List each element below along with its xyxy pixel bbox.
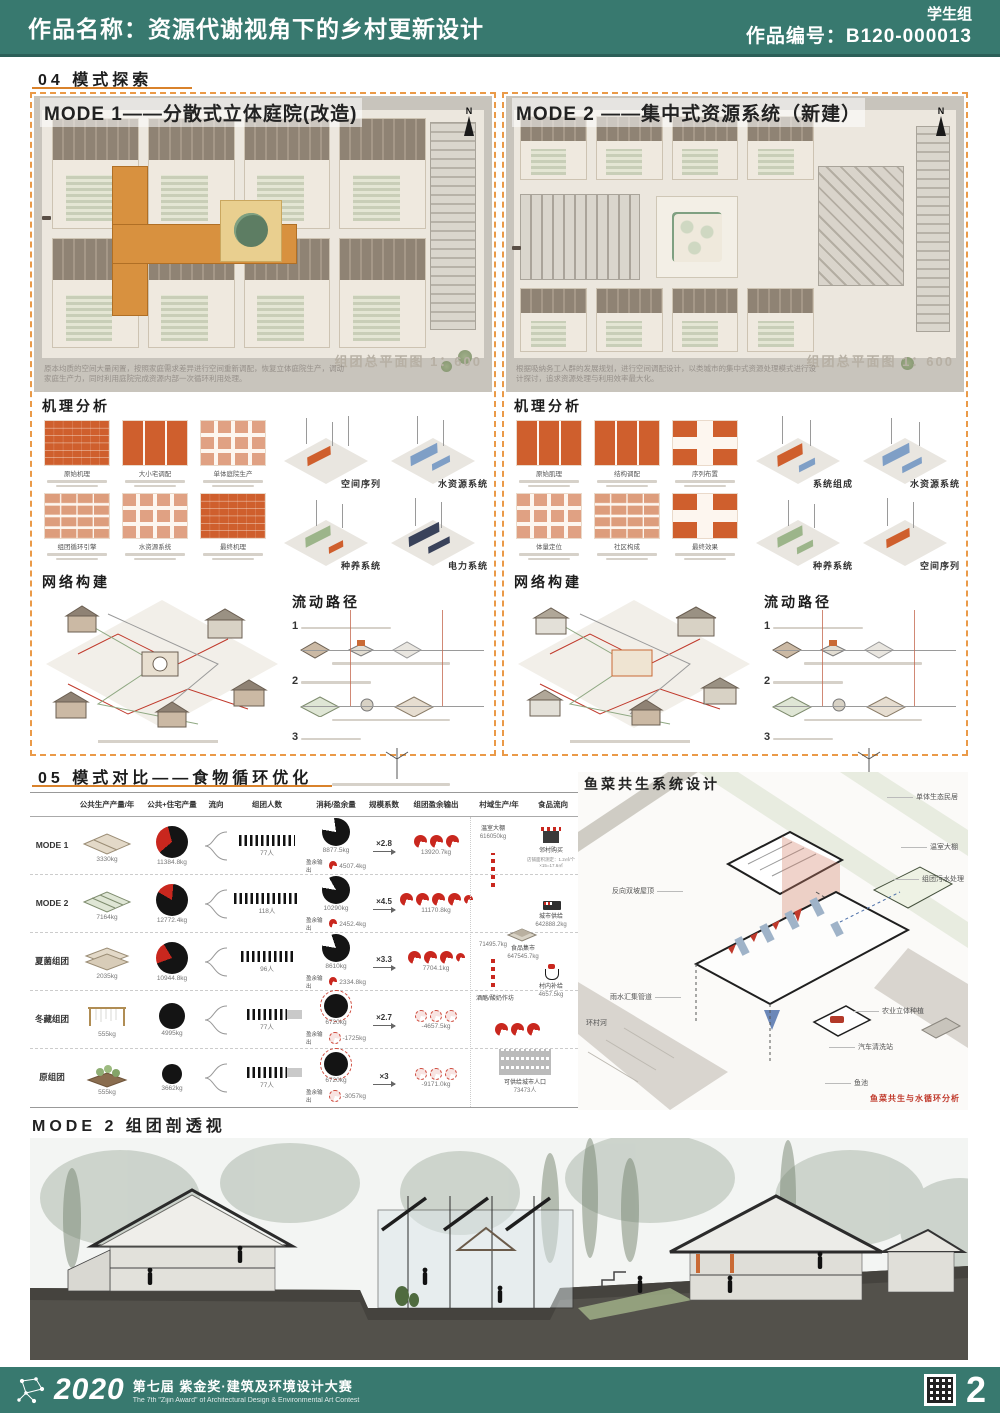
col-header: 组团盈余输出 — [402, 799, 470, 810]
north-arrow-icon: N — [456, 106, 482, 136]
people-icons — [247, 1067, 287, 1078]
mode1-panel: MODE 1——分散式立体庭院(改造) N 组团总平面图 1：600 原本均质的… — [30, 92, 496, 756]
row-label: MODE 1 — [36, 840, 69, 851]
pond — [234, 213, 268, 247]
surplus-value: -3057kg — [343, 1093, 367, 1100]
mech-thumb — [44, 493, 110, 539]
flow-branch — [205, 1058, 227, 1098]
people-count: 77人 — [260, 1021, 274, 1031]
col-header: 公共生产产量/年 — [74, 799, 140, 810]
plate-icon — [862, 636, 896, 660]
output-fan — [415, 1010, 427, 1022]
arrow-icon — [373, 967, 395, 968]
work-code: 作品编号：B120-000013 — [746, 25, 972, 49]
footer-year: 2020 — [54, 1373, 125, 1407]
output-fan — [430, 1010, 442, 1022]
long-building — [520, 194, 640, 280]
output-fan — [495, 1023, 508, 1036]
flow-heading: 流动路径 — [764, 592, 962, 612]
produce-value: 3330kg — [96, 856, 117, 863]
output-fan — [414, 835, 427, 848]
mech-thumb — [44, 420, 110, 466]
surplus-label: 盈余输出 — [306, 858, 327, 874]
mech-thumb — [122, 493, 188, 539]
row-label: 冬藏组团 — [35, 1014, 69, 1025]
neighbor-node: 邻村购买 — [527, 847, 575, 855]
surplus-label: 盈余输出 — [306, 974, 327, 990]
mech-thumb — [672, 420, 738, 466]
output-value: 7704.1kg — [423, 965, 450, 972]
diagram-label: 雨水汇集管道 — [610, 992, 684, 1002]
surplus-fan — [329, 1032, 341, 1044]
diagram-label: 反向双坡屋顶 — [612, 886, 686, 896]
people-count: 77人 — [260, 847, 274, 857]
consume-pie — [322, 876, 350, 904]
total-value: 4995kg — [161, 1030, 182, 1037]
mech-thumb — [516, 493, 582, 539]
diagram-label: 环村河 — [586, 1018, 607, 1028]
plan-caption: 组团总平面图 1：600 — [806, 351, 954, 370]
output-fan — [527, 1023, 540, 1036]
heading-underline — [32, 785, 332, 787]
total-value: 3662kg — [161, 1085, 182, 1092]
surplus-fan — [329, 1090, 341, 1102]
mode2-title: MODE 2 ——集中式资源系统（新建） — [512, 98, 865, 127]
arrow-icon — [373, 851, 395, 852]
flow-dots — [491, 957, 495, 987]
flow-paths: 流动路径 1 2 3 — [764, 592, 962, 792]
flow-step-number: 1 — [764, 620, 770, 632]
output-fan — [432, 893, 445, 906]
output-fan — [448, 893, 461, 906]
col-header: 村域生产/年 — [470, 799, 528, 810]
col-header: 公共+住宅产量 — [140, 799, 204, 810]
cluster-thumb — [80, 887, 134, 913]
section-perspective-render — [30, 1138, 968, 1360]
flow-branch — [205, 1000, 227, 1040]
consume-value: 8877.5kg — [323, 847, 350, 854]
workshop-node: 酒酪/酸奶作坊 — [471, 995, 519, 1003]
population-node: 可供给城市人口73473人 — [485, 1079, 565, 1095]
page-number: 2 — [966, 1372, 986, 1408]
greenhouse-strip — [916, 126, 950, 332]
arrow-icon — [373, 1025, 395, 1026]
output-fan — [440, 951, 453, 964]
group-label: 学生组 — [746, 6, 972, 25]
truck-icon — [543, 901, 561, 910]
city-node: 城市供给642888.2kg — [527, 913, 575, 929]
produce-value: 2035kg — [96, 973, 117, 980]
axon-diagrams: 空间序列 水资源系统 种养系统 电力系统 — [276, 416, 490, 572]
surplus-label: 盈余输出 — [306, 1088, 327, 1104]
axon-label: 种养系统 — [341, 559, 381, 572]
network-heading: 网络构建 — [514, 572, 582, 592]
plan-description: 根据吸纳务工人群的发展规划，进行空间调配设计，以类城市的集中式资源处理模式进行设… — [516, 364, 816, 384]
house-icon — [770, 636, 804, 660]
people-icons — [241, 951, 293, 962]
plate-icon — [390, 636, 424, 660]
scale-coefficient: ×4.5 — [376, 897, 392, 906]
people-count: 118人 — [259, 905, 276, 915]
north-arrow-icon: N — [928, 106, 954, 136]
consume-value: 6720kg — [325, 1019, 346, 1026]
cluster-thumb — [80, 1060, 134, 1088]
axon-label: 系统组成 — [813, 477, 853, 490]
house-block — [339, 238, 426, 349]
comparison-table: 公共生产产量/年 公共+住宅产量 流向 组团人数 消耗/盈余量 规模系数 组团盈… — [30, 792, 578, 1108]
surplus-label: 盈余输出 — [306, 916, 327, 932]
scale-coefficient: ×2.8 — [376, 839, 392, 848]
output-value: -9171.0kg — [422, 1081, 451, 1088]
consume-value: 10290kg — [324, 905, 349, 912]
mech-thumb — [516, 420, 582, 466]
mech-label: 结构调配 — [592, 468, 662, 478]
consume-pie — [324, 1052, 348, 1076]
surplus-value: 2452.4kg — [339, 921, 366, 928]
mech-thumb — [672, 493, 738, 539]
house-block — [596, 288, 663, 352]
cluster-thumb — [80, 944, 134, 972]
surplus-value: 2334.8kg — [339, 979, 366, 986]
consume-pie — [324, 994, 348, 1018]
surplus-label: 盈余输出 — [306, 1030, 327, 1046]
output-fan — [400, 893, 413, 906]
production-pie — [159, 1003, 185, 1029]
axon-label: 电力系统 — [448, 559, 488, 572]
fish-caption: 鱼菜共生与水循环分析 — [870, 1093, 960, 1104]
greenhouse-icon — [298, 691, 342, 717]
mech-thumb — [594, 420, 660, 466]
mech-thumb — [200, 420, 266, 466]
mode1-site-plan: N 组团总平面图 1：600 原本均质的空间大量闲置，按照家庭需求差异进行空间重… — [34, 96, 492, 392]
car — [42, 216, 51, 220]
arrow-icon — [373, 1084, 395, 1085]
mech-thumb — [594, 493, 660, 539]
zijin-logo-icon — [14, 1373, 48, 1407]
output-fan — [424, 951, 437, 964]
mech-label: 原始肌理 — [514, 468, 584, 478]
scale-coefficient: ×3.3 — [376, 955, 392, 964]
mech-label: 序列布置 — [670, 468, 740, 478]
diagram-label: 农业立体种植 — [850, 1006, 924, 1016]
greenhouse-icon — [864, 691, 908, 717]
food-flow-zone: 温室大棚616050kg 71495.7kg 酒酪/酸奶作坊 食品集市64754… — [470, 817, 578, 1107]
network-diagram — [510, 594, 758, 752]
mech-label: 最终效果 — [670, 541, 740, 551]
arrow-icon — [373, 909, 395, 910]
greenhouse-icon — [770, 691, 814, 717]
cluster-thumb — [80, 829, 134, 855]
row-label: 夏菌组团 — [35, 956, 69, 967]
output-fan — [445, 1010, 457, 1022]
cart-icon — [545, 969, 559, 980]
total-value: 10944.8kg — [157, 975, 187, 982]
footer-bar: 2020 第七届 紫金奖·建筑及环境设计大赛 The 7th "Zijin Aw… — [0, 1367, 1000, 1413]
output-fan — [415, 1068, 427, 1080]
row-label: 原组团 — [39, 1072, 65, 1083]
surplus-fan — [329, 919, 337, 928]
output-value: 13920.7kg — [421, 849, 451, 856]
neighbor-note: 店铺面积测定：1.2㎡/个×15=17.6㎡ — [523, 857, 579, 869]
mech-thumb — [200, 493, 266, 539]
wind-turbine-icon — [374, 747, 420, 781]
consume-pie — [322, 818, 350, 846]
output-fan — [430, 835, 443, 848]
pump-icon — [356, 691, 378, 717]
output-fan — [430, 1068, 442, 1080]
flow-dots — [491, 853, 495, 887]
people-icons — [239, 835, 295, 846]
mech-label: 最终机理 — [198, 541, 268, 551]
perspective-heading: MODE 2 组团剖透视 — [32, 1112, 226, 1136]
output-fan — [416, 893, 429, 906]
flow-branch — [205, 884, 227, 924]
scale-coefficient: ×2.7 — [376, 1013, 392, 1022]
consume-value: 8610kg — [325, 963, 346, 970]
house-icon — [298, 636, 332, 660]
work-title: 作品名称：资源代谢视角下的乡村更新设计 — [28, 10, 484, 44]
row-label: MODE 2 — [36, 898, 69, 909]
market-node: 食品集市647545.7kg — [497, 945, 549, 961]
network-heading: 网络构建 — [42, 572, 110, 592]
plan-caption: 组团总平面图 1：600 — [334, 351, 482, 370]
total-value: 11384.8kg — [157, 859, 187, 866]
house-block — [672, 288, 739, 352]
mode2-site-plan: N 组团总平面图 1：600 根据吸纳务工人群的发展规划，进行空间调配设计，以类… — [506, 96, 964, 392]
mechanism-diagrams: 原始机理 大小宅调配 单体庭院生产 组团循环引擎 水资源系统 最终机理 — [42, 420, 268, 560]
axon-label: 空间序列 — [341, 477, 381, 490]
output-fan — [408, 951, 421, 964]
footer-title-cn: 第七届 紫金奖·建筑及环境设计大赛 — [133, 1376, 360, 1395]
network-diagram — [38, 594, 286, 752]
mech-thumb — [122, 420, 188, 466]
flow-paths: 流动路径 1 2 3 — [292, 592, 490, 792]
people-icons — [234, 893, 300, 904]
flow-step-number: 3 — [764, 731, 770, 743]
cluster-thumb — [80, 1002, 134, 1030]
output-fan — [511, 1023, 524, 1036]
consume-value: 6720kg — [325, 1077, 346, 1084]
col-header: 食品流向 — [528, 799, 578, 810]
plan-description: 原本均质的空间大量闲置，按照家庭需求差异进行空间重新调配，恢复立体庭院生产，调动… — [44, 364, 344, 384]
output-value: -4657.5kg — [422, 1023, 451, 1030]
consume-pie — [322, 934, 350, 962]
mode2-panel: MODE 2 ——集中式资源系统（新建） N 组团总平面图 1：600 根据吸纳… — [502, 92, 968, 756]
production-pie — [156, 884, 188, 916]
diagram-label: 单体生态民居 — [884, 792, 958, 802]
greenhouse-icon — [392, 691, 436, 717]
production-pie — [162, 1064, 182, 1084]
production-pie — [156, 942, 188, 974]
diagram-label: 汽车清洗站 — [826, 1042, 893, 1052]
mech-label: 社区构成 — [592, 541, 662, 551]
output-value: 11170.8kg — [421, 907, 450, 914]
diagram-label: 鱼池 — [822, 1078, 868, 1088]
mechanism-diagrams: 原始肌理 结构调配 序列布置 体量定位 社区构成 最终效果 — [514, 420, 740, 560]
fish-heading: 鱼菜共生系统设计 — [584, 774, 720, 794]
axon-label: 水资源系统 — [910, 477, 960, 490]
mech-label: 单体庭院生产 — [198, 468, 268, 478]
village-node: 村内补给4657.5kg — [527, 983, 575, 999]
flow-step-number: 1 — [292, 620, 298, 632]
people-count: 77人 — [260, 1079, 274, 1089]
mech-label: 组团循环引擎 — [42, 541, 112, 551]
shop-icon — [543, 831, 559, 843]
fish-veg-panel: 鱼菜共生系统设计 单体生态民居 温室大棚 组团污水处理 反向双坡屋顶 雨水汇集管… — [578, 772, 968, 1110]
people-count: 96人 — [260, 963, 274, 973]
footer-title-en: The 7th "Zijin Award" of Architectural D… — [133, 1397, 360, 1404]
header-bar: 作品名称：资源代谢视角下的乡村更新设计 学生组 作品编号：B120-000013 — [0, 0, 1000, 57]
surplus-fans — [495, 1023, 540, 1036]
axon-diagrams: 系统组成 水资源系统 种养系统 空间序列 — [748, 416, 962, 572]
mech-label: 水资源系统 — [120, 541, 190, 551]
surplus-value: -1725kg — [343, 1035, 367, 1042]
scale-coefficient: ×3 — [379, 1072, 388, 1081]
mech-label: 大小宅调配 — [120, 468, 190, 478]
col-header: 流向 — [204, 799, 228, 810]
population-icons — [499, 1049, 551, 1075]
flow-step-number: 2 — [764, 675, 770, 687]
col-header: 组团人数 — [228, 799, 306, 810]
flow-branch — [205, 826, 227, 866]
produce-value: 555kg — [98, 1031, 116, 1038]
produce-value: 555kg — [98, 1089, 116, 1096]
total-value: 12772.4kg — [157, 917, 187, 924]
flow-branch — [205, 942, 227, 982]
axon-label: 水资源系统 — [438, 477, 488, 490]
diagram-label: 组团污水处理 — [890, 874, 964, 884]
axon-label: 种养系统 — [813, 559, 853, 572]
output-fan — [445, 1068, 457, 1080]
mode1-title: MODE 1——分散式立体庭院(改造) — [40, 98, 362, 127]
greenhouse-node: 温室大棚616050kg — [471, 825, 515, 841]
surplus-fan — [329, 977, 337, 986]
mech-heading: 机理分析 — [514, 396, 582, 416]
col-header: 消耗/盈余量 — [306, 799, 366, 810]
mech-heading: 机理分析 — [42, 396, 110, 416]
heading-underline — [32, 87, 192, 89]
production-pie — [156, 826, 188, 858]
greenhouse-strip — [430, 122, 476, 330]
flow-step-number: 3 — [292, 731, 298, 743]
mech-label: 体量定位 — [514, 541, 584, 551]
people-icons — [247, 1009, 287, 1020]
surplus-fan — [329, 861, 337, 870]
resource-center — [818, 166, 904, 286]
diagram-label: 温室大棚 — [898, 842, 958, 852]
axon-label: 空间序列 — [920, 559, 960, 572]
flow-heading: 流动路径 — [292, 592, 490, 612]
output-fan — [456, 953, 465, 962]
pump-icon — [828, 691, 850, 717]
fish-veg-diagram — [578, 772, 968, 1110]
flow-step-number: 2 — [292, 675, 298, 687]
courtyard-pattern — [672, 212, 722, 262]
mech-label: 原始机理 — [42, 468, 112, 478]
house-block — [747, 288, 814, 352]
qr-code — [924, 1374, 956, 1406]
surplus-value: 4507.4kg — [339, 863, 366, 870]
col-header: 规模系数 — [366, 799, 402, 810]
produce-value: 7164kg — [96, 914, 117, 921]
house-block — [339, 118, 426, 229]
car — [512, 246, 521, 250]
comparison-header: 公共生产产量/年 公共+住宅产量 流向 组团人数 消耗/盈余量 规模系数 组团盈… — [30, 793, 578, 817]
house-block — [520, 288, 587, 352]
output-fan — [446, 835, 459, 848]
